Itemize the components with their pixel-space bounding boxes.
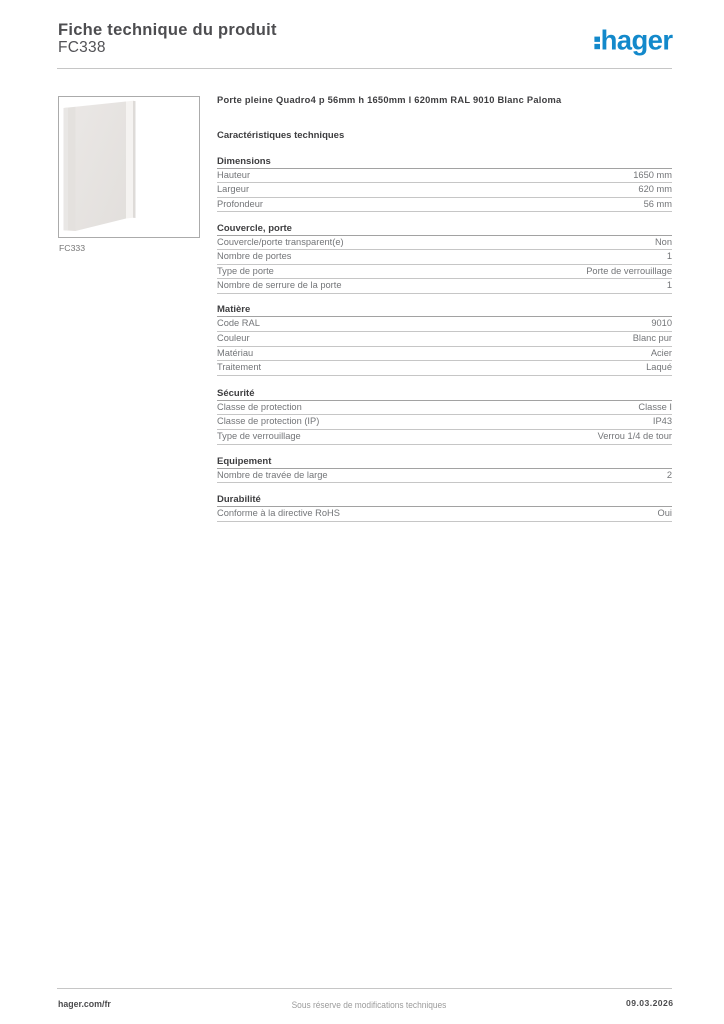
svg-text:hager: hager (601, 28, 673, 56)
